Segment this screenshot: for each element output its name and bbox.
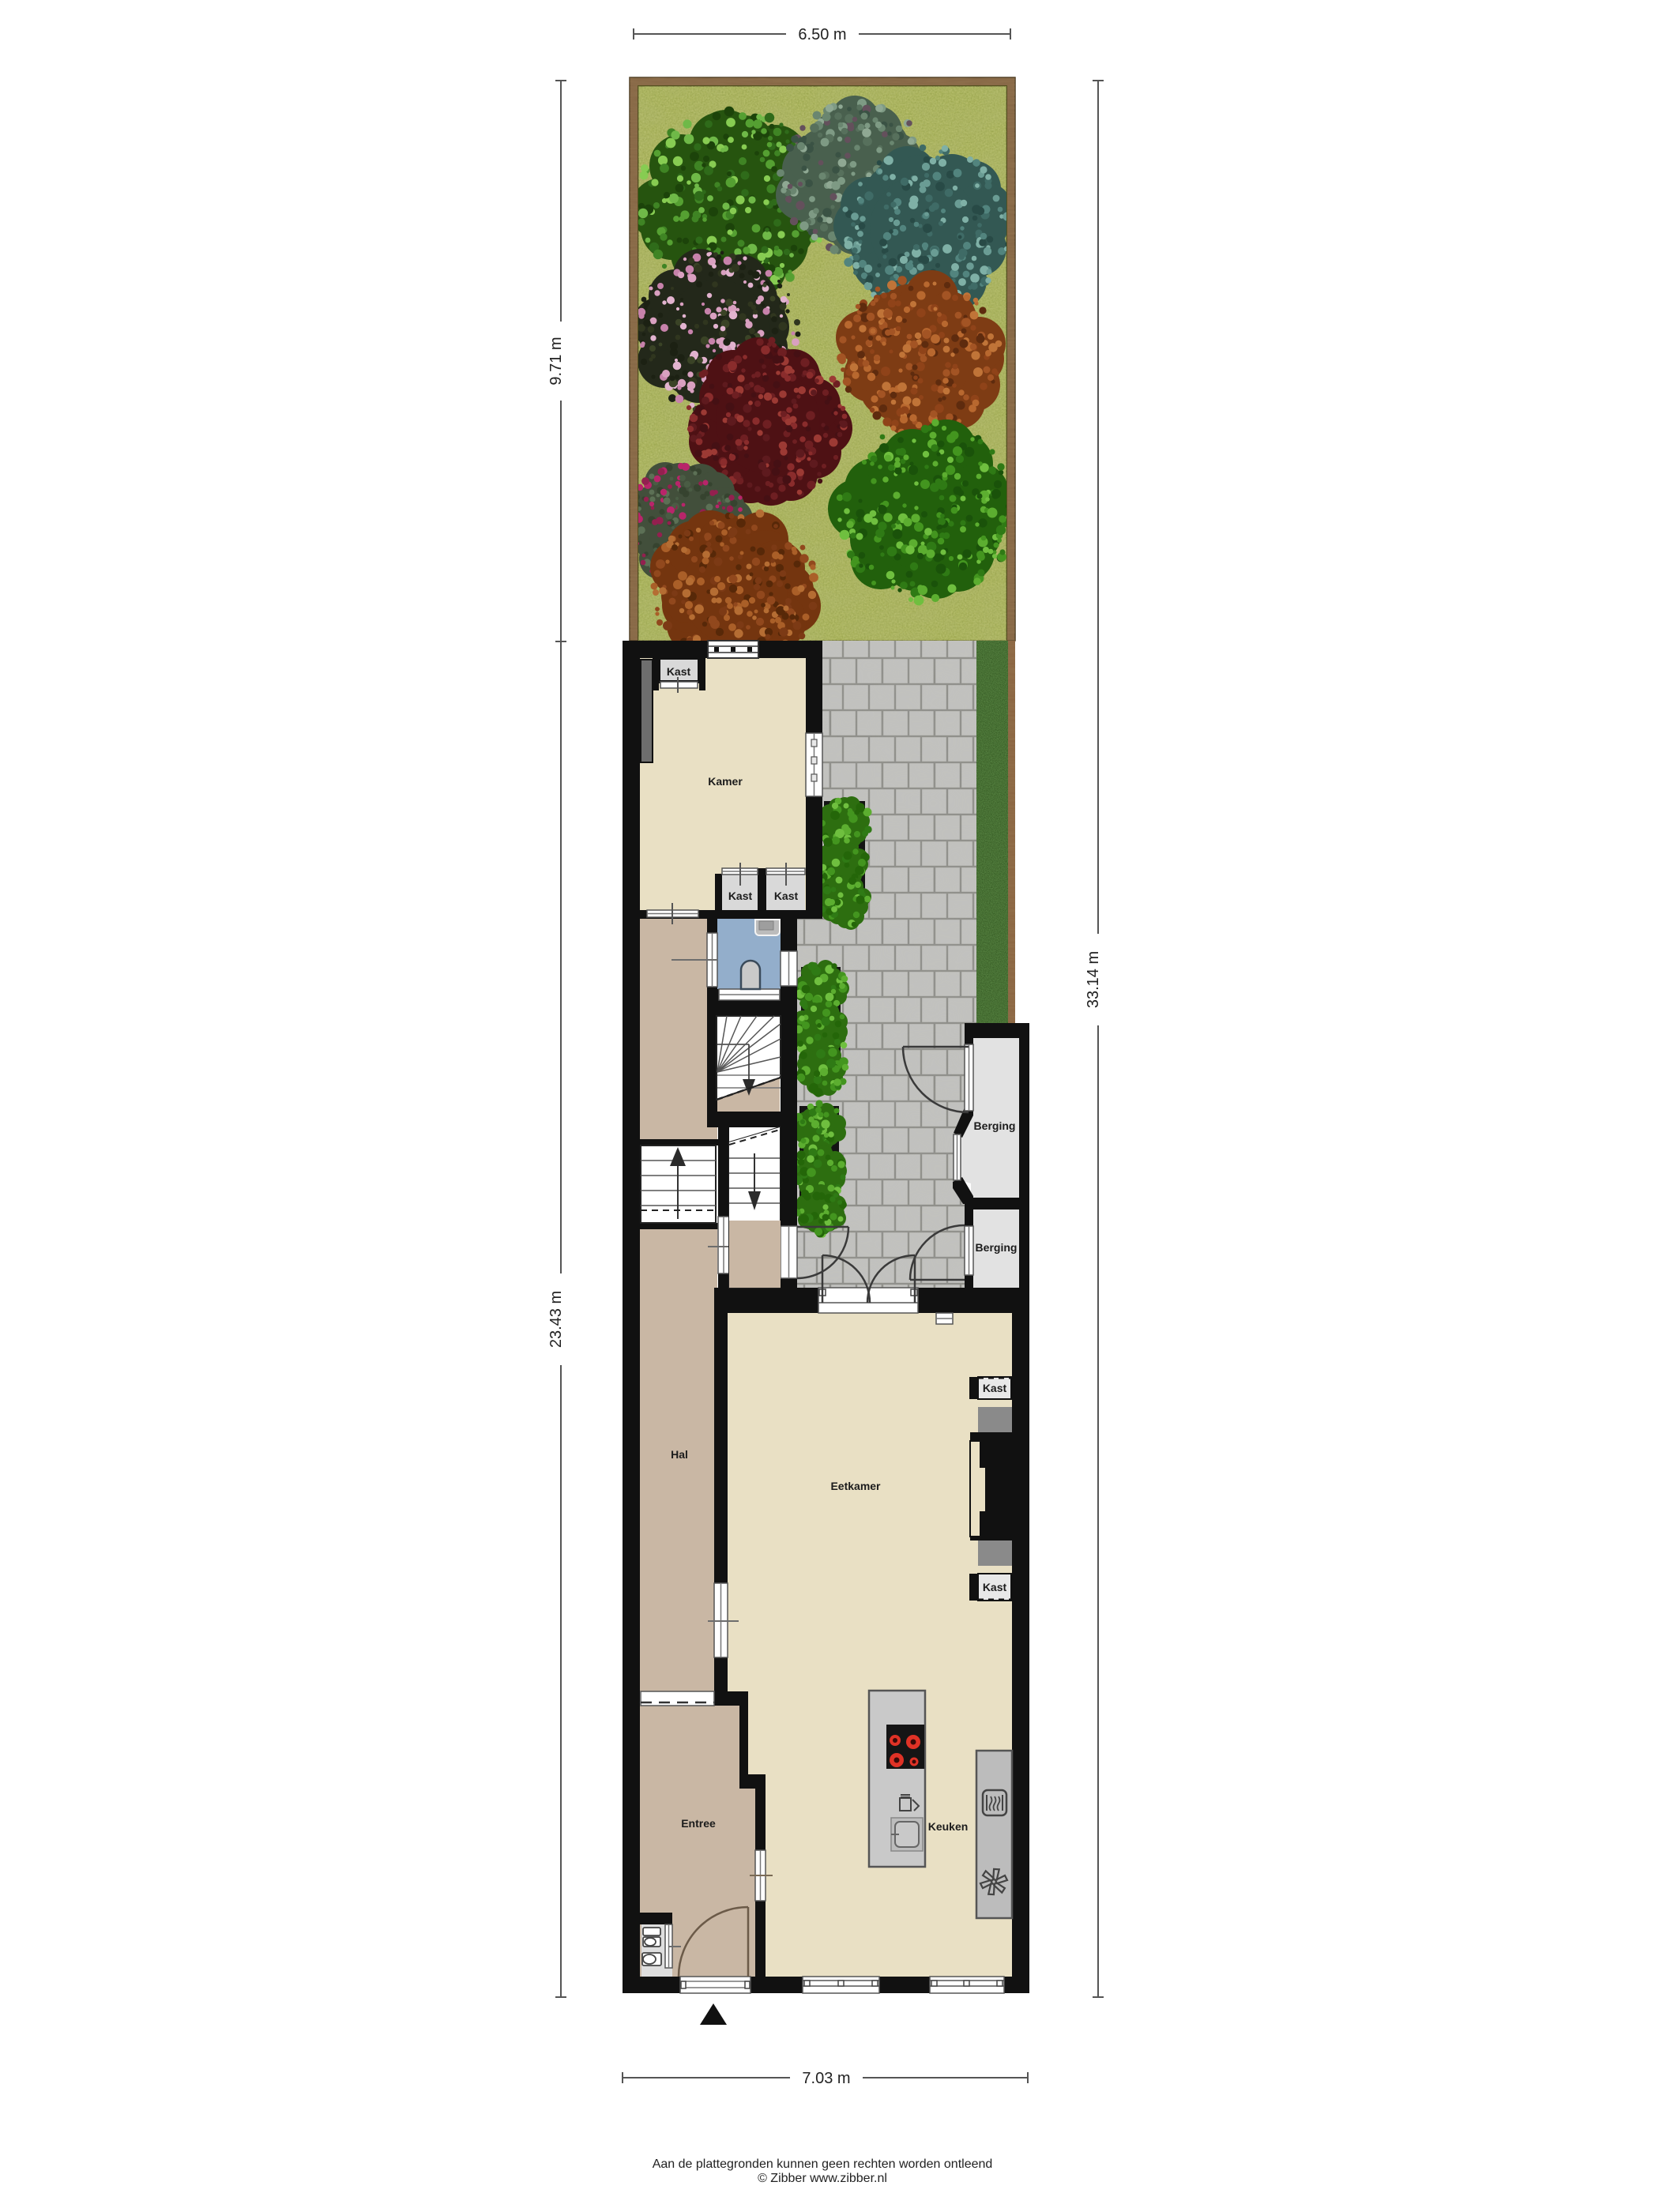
svg-text:Kast: Kast	[983, 1581, 1007, 1593]
svg-text:Aan de plattegronden kunnen ge: Aan de plattegronden kunnen geen rechten…	[653, 2157, 993, 2171]
svg-text:Keuken: Keuken	[928, 1820, 969, 1833]
svg-text:6.50 m: 6.50 m	[798, 26, 846, 43]
svg-text:7.03 m: 7.03 m	[802, 2070, 850, 2087]
svg-text:Kast: Kast	[728, 890, 753, 902]
svg-text:33.14 m: 33.14 m	[1085, 951, 1102, 1008]
svg-text:Kast: Kast	[667, 665, 691, 678]
svg-text:Kamer: Kamer	[708, 775, 743, 788]
svg-text:Berging: Berging	[976, 1241, 1018, 1254]
svg-text:© Zibber www.zibber.nl: © Zibber www.zibber.nl	[758, 2172, 887, 2185]
svg-text:Berging: Berging	[974, 1119, 1016, 1132]
svg-text:Entree: Entree	[681, 1817, 716, 1830]
svg-text:Kast: Kast	[774, 890, 799, 902]
svg-text:Hal: Hal	[671, 1448, 688, 1461]
svg-text:23.43 m: 23.43 m	[547, 1291, 565, 1348]
svg-text:9.71 m: 9.71 m	[547, 337, 565, 385]
svg-text:Kast: Kast	[983, 1382, 1007, 1394]
svg-text:Eetkamer: Eetkamer	[830, 1480, 881, 1492]
